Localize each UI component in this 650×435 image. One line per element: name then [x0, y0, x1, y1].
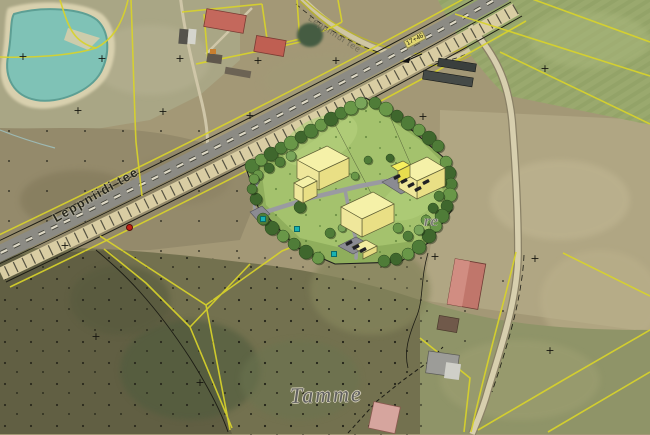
- map-canvas: Leppniidi tee Leppniidi tee Tamme re 17+…: [0, 0, 650, 435]
- utility-marker-icon: [331, 251, 337, 257]
- pink-roof-building: [368, 402, 400, 434]
- utility-marker-icon: [294, 226, 300, 232]
- white-house: [187, 29, 196, 45]
- orthophoto-siteplan-image: [0, 0, 650, 435]
- dark-bush: [297, 23, 323, 47]
- farm-shed: [437, 315, 459, 332]
- red-point-marker-icon: [126, 224, 133, 231]
- utility-marker-icon: [260, 216, 266, 222]
